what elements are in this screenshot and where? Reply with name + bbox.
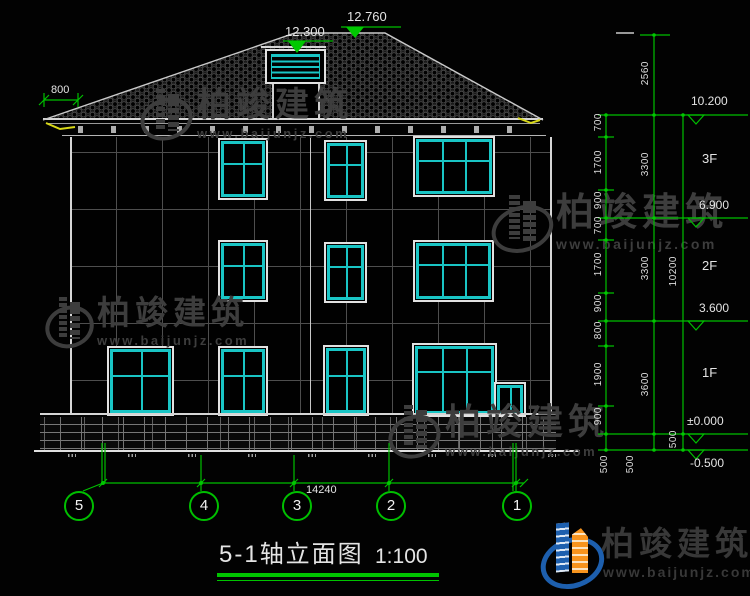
dim-label: 700	[594, 216, 604, 234]
axis-bubble-5: 5	[64, 491, 94, 521]
eave-overhang-label: 800	[51, 85, 69, 96]
dim-label: 900	[594, 294, 604, 312]
dim-label: 500	[600, 455, 610, 473]
axis-bubble-1: 1	[502, 491, 532, 521]
floor-label-3f: 3F	[702, 152, 717, 165]
drawing-scale: 1:100	[375, 546, 428, 567]
dim-label: 3600	[641, 372, 651, 396]
axis-bubble-3: 3	[282, 491, 312, 521]
dim-label: 3300	[641, 152, 651, 176]
dim-label-total: 10200	[669, 256, 679, 286]
dim-label: 500	[626, 455, 636, 473]
dim-label: 800	[594, 321, 604, 339]
level-label-ground: ±0.000	[687, 415, 724, 427]
dim-label: 2560	[641, 61, 651, 85]
level-label-3f: 6.900	[699, 199, 729, 211]
drawing-title: 5-1轴立面图	[219, 543, 364, 567]
level-label-2f: 3.600	[699, 302, 729, 314]
axis-bubble-2: 2	[376, 491, 406, 521]
floor-label-2f: 2F	[702, 259, 717, 272]
title-underline-thick	[217, 573, 439, 577]
dim-label: 1700	[594, 150, 604, 174]
cupola-level-label: 12.300	[285, 25, 325, 38]
dimension-linework	[0, 0, 750, 596]
brand-logo-icon	[543, 520, 601, 588]
dim-label: 700	[594, 113, 604, 131]
brand-logo-url: www.baijunjz.com	[603, 565, 750, 579]
dim-label: 900	[594, 191, 604, 209]
dim-label: 3300	[641, 256, 651, 280]
floor-label-1f: 1F	[702, 366, 717, 379]
title-underline-thin	[217, 580, 439, 581]
dim-label: 1900	[594, 362, 604, 386]
ridge-level-label: 12.760	[347, 10, 387, 23]
level-label-eave: 10.200	[691, 95, 728, 107]
dim-label: 500	[669, 430, 679, 448]
level-label-site: -0.500	[690, 457, 724, 469]
dim-label: 1700	[594, 252, 604, 276]
axis-bubble-4: 4	[189, 491, 219, 521]
dim-label: 900	[594, 407, 604, 425]
overall-width-label: 14240	[306, 485, 337, 496]
brand-logo-text: 柏竣建筑	[601, 527, 750, 560]
elevation-drawing-canvas: 柏竣建筑 www.baijunjz.com 柏竣建筑 www.baijunjz.…	[0, 0, 750, 596]
